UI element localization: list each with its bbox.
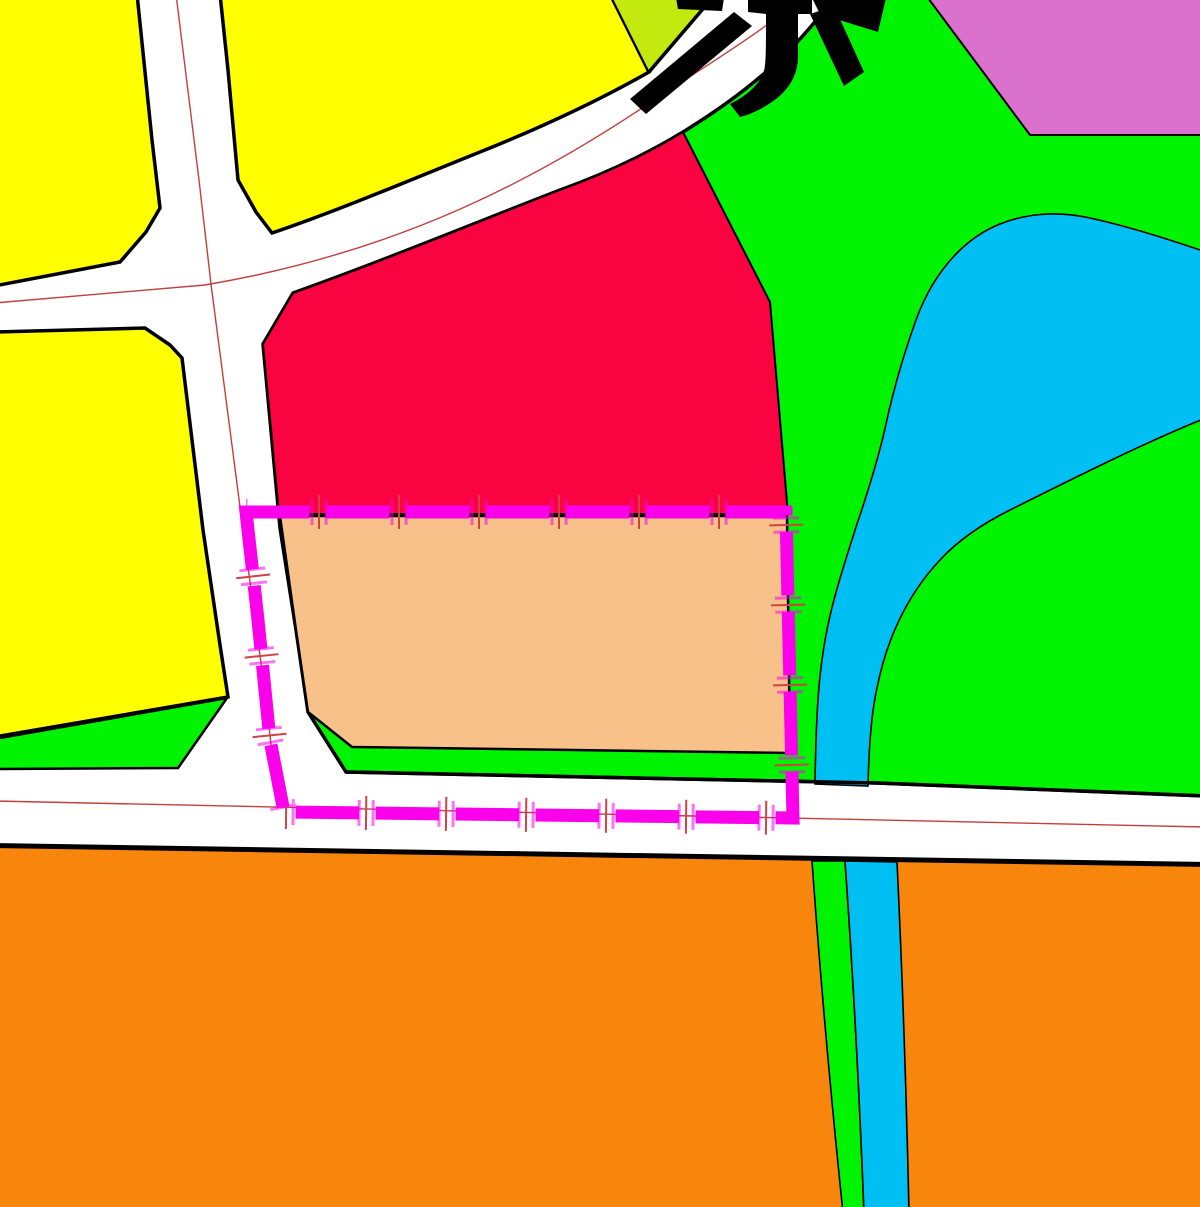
region-selected-parcel[interactable] (280, 516, 790, 753)
zoning-map (0, 0, 1200, 1207)
region-orange-block-south (0, 846, 1200, 1207)
region-yellow-block-northwest (0, 0, 160, 286)
